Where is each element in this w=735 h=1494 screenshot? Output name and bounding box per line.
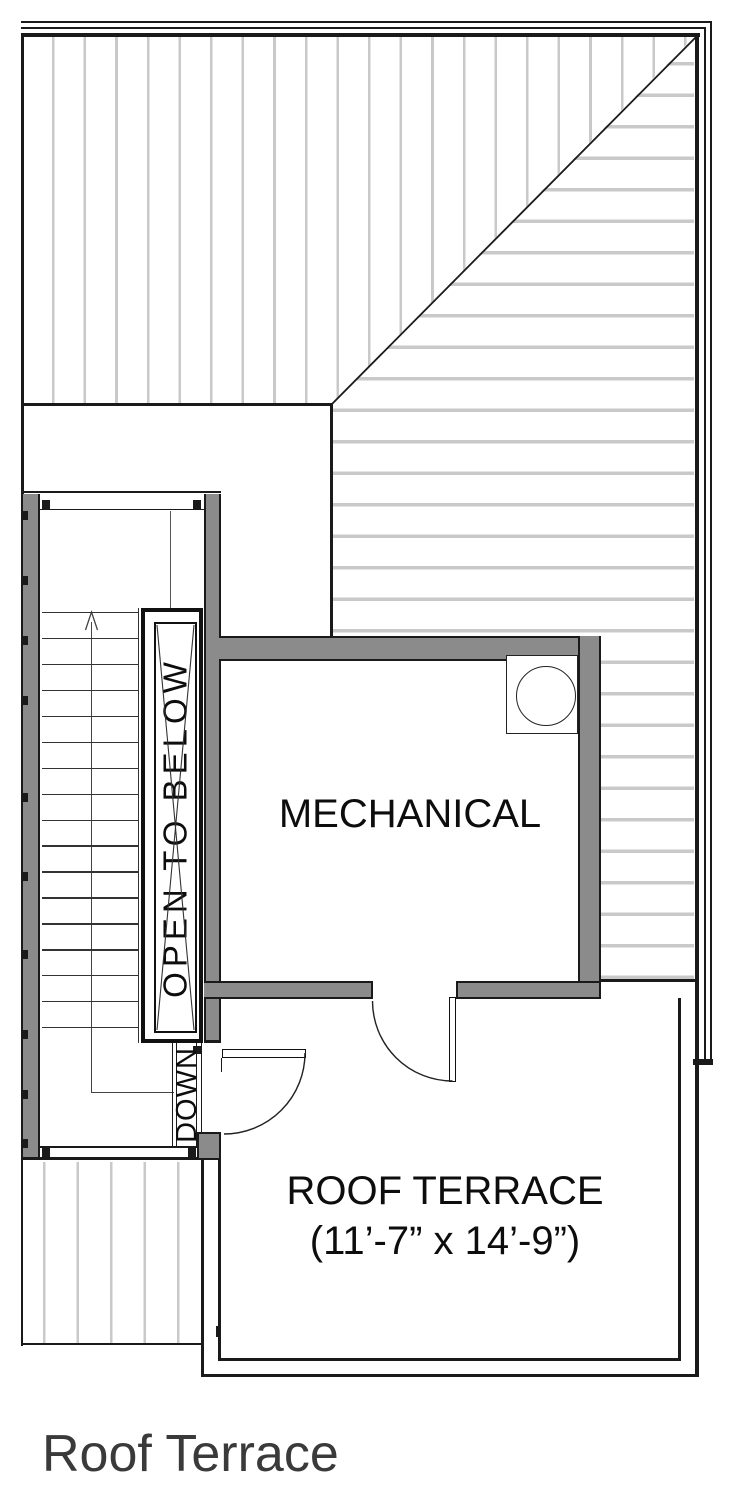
mechanical-south-wall-left — [204, 981, 373, 999]
stair-tread-line — [42, 794, 138, 795]
stair-tread-line — [42, 1027, 138, 1028]
glazing-mullion-mark — [21, 793, 28, 802]
lower-roof-bottom-line — [21, 1343, 203, 1345]
stair-tread-line — [42, 664, 138, 665]
glazing-mullion-mark — [21, 1030, 28, 1039]
stairwell-north-window — [40, 494, 204, 510]
roof-edge-top — [21, 33, 700, 37]
mechanical-south-wall-right — [456, 981, 601, 999]
terrace-parapet-inner-right — [678, 998, 681, 1360]
frame-line-top-inner — [21, 27, 706, 29]
mechanical-equipment-circle — [516, 666, 576, 726]
roof-edge-left-upper — [21, 33, 24, 494]
stair-tread-line — [42, 820, 138, 821]
stair-tread-line — [42, 612, 138, 613]
stair-tread-line — [42, 871, 138, 872]
mechanical-door-swing-arc — [373, 1001, 453, 1081]
glazing-mullion-mark — [21, 696, 28, 705]
mechanical-east-wall — [578, 636, 601, 998]
stair-tread-line — [42, 1001, 138, 1002]
terrace-label-block: ROOF TERRACE (11’-7” x 14’-9”) — [250, 1166, 640, 1266]
stair-tread-line — [42, 845, 138, 846]
stair-path-line-horizontal — [91, 1092, 174, 1093]
stair-tread-line — [42, 975, 138, 976]
glazing-mullion-mark — [21, 950, 28, 959]
upper-roof-bottom-line — [21, 403, 332, 406]
stairwell-north-wall-outer-line — [21, 491, 221, 493]
frame-line-top-outer — [21, 21, 712, 23]
frame-line-right-outer — [710, 21, 712, 1062]
mechanical-door-leaf — [449, 997, 456, 1082]
stairwell-right-wall — [204, 494, 221, 1043]
window-end-block — [188, 1147, 196, 1157]
window-end-block — [42, 1147, 50, 1157]
stairwell-south-wall-outer-line — [21, 1157, 202, 1160]
roof-edge-right — [695, 33, 699, 1377]
glazing-mullion-mark — [21, 636, 28, 645]
window-end-block — [193, 500, 201, 510]
glazing-mullion-mark — [21, 872, 28, 881]
terrace-parapet-outer-left — [201, 1160, 204, 1377]
open-to-below-label: OPEN TO BELOW — [154, 628, 197, 1028]
stair-path-line-vertical — [91, 622, 92, 1093]
stair-tread-line — [42, 923, 138, 924]
stair-tread-line — [42, 897, 138, 898]
terrace-dimensions-label: (11’-7” x 14’-9”) — [250, 1216, 640, 1266]
roof-hatch-vertical-lower — [23, 1162, 203, 1344]
glazing-mullion-mark — [21, 1139, 28, 1148]
stairwell-door-jamb-tick — [221, 1058, 222, 1072]
stairwell-left-wall — [21, 494, 40, 1160]
sheet-title: Roof Terrace — [42, 1424, 339, 1484]
stair-tread-line — [42, 690, 138, 691]
window-end-block — [42, 500, 50, 510]
roof-valley-vertical-line — [330, 403, 333, 638]
roof-terrace-floor-plan: OPEN TO BELOW DOWN MECHANICAL ROOF TERRA… — [0, 0, 735, 1494]
stair-stringer-line — [138, 608, 139, 1043]
stair-tread-line — [42, 949, 138, 950]
open-shaft-edge-line — [170, 511, 171, 608]
terrace-parapet-outer-bottom — [201, 1374, 697, 1377]
stair-tread-line — [42, 742, 138, 743]
stair-tread-line — [42, 638, 138, 639]
glazing-mullion-mark — [21, 1090, 28, 1099]
terrace-parapet-inner-bottom — [218, 1358, 681, 1361]
terrace-wall-mark — [216, 1326, 221, 1337]
frame-line-right-inner — [704, 27, 706, 1062]
mechanical-room-label: MECHANICAL — [240, 792, 580, 837]
down-label: DOWN — [173, 1043, 201, 1147]
roof-bottom-edge-right — [601, 979, 696, 982]
glazing-mullion-mark — [21, 576, 28, 585]
roof-edge-left-lower — [21, 1160, 23, 1346]
stairwell-door-swing-arc — [224, 1053, 305, 1134]
stair-tread-line — [42, 716, 138, 717]
stair-tread-line — [42, 768, 138, 769]
stairwell-door-leaf — [222, 1049, 306, 1058]
terrace-room-label: ROOF TERRACE — [250, 1166, 640, 1216]
glazing-mullion-mark — [21, 511, 28, 520]
